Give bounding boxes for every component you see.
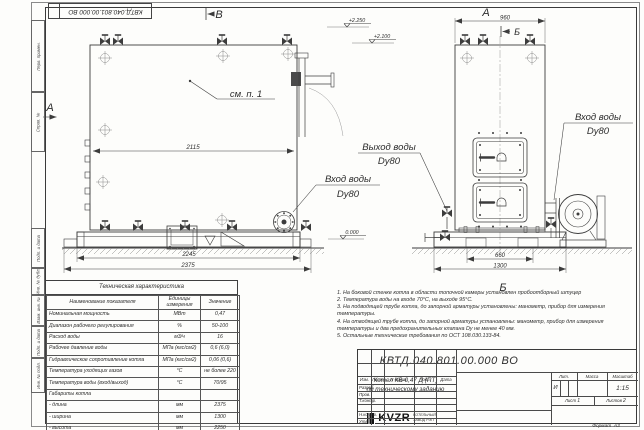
spec-table: Техническая характеристика Наименование … [45,280,238,424]
row-prov: Пров. [359,392,384,397]
spec-row: Рабочее давление водыМПа (кгс/см2)0,6 (6… [47,344,240,355]
spec-row: Диапазон рабочего регулирования%50-100 [47,321,240,332]
spec-row: - высотамм2250 [47,423,240,430]
margin-vzam-inv: Взам. инв. № [31,295,45,326]
col-podp: Подп. [414,377,436,382]
margin-podp-data-2: Подп. и дата [31,326,45,358]
col-izm: Изм. [358,377,371,382]
lit-value: И [551,385,560,391]
doc-number: КВТД.040.801.00.000 ВО [358,350,540,372]
note-line: 3. На подводящей трубе котла, до запорно… [337,304,621,318]
margin-inv-podl: Инв. № подл. [31,358,45,393]
margin-inv-dubl: Инв. № дубл. [31,268,45,295]
spec-row: Температура уходящих газов°Сне более 220 [47,366,240,377]
spec-row: - длинамм2375 [47,401,240,412]
note-line: 4. На отводящей трубе котла, до запорной… [337,319,621,333]
spec-table-grid: Наименование показателя Единицы измерени… [46,295,240,430]
margin-sprav-no: Справ. № [31,92,45,152]
drawing-sheet: В А см. п. 1 2115 2245 2375 Вход воды Dy… [0,0,644,430]
lit-label: Лит. [551,374,577,379]
margin-podp-data-1: Подп. и дата [31,228,45,268]
spec-row: Номинальная мощностьМВт0,47 [47,310,240,321]
col-ndoc: N докум. [384,377,414,382]
note-line: 1. На боковой стенке котла в области топ… [337,290,621,297]
row-tkontr: Т.контр. [359,398,384,403]
note-line: 5. Остальные технические требования по О… [337,333,621,340]
row-utv: Утв. [359,419,384,424]
spec-col-value: Значение [201,296,240,310]
notes: 1. На боковой стенке котла в области топ… [337,290,621,340]
spec-row: - ширинамм1300 [47,412,240,423]
row-nkontr: Н.контр. [359,412,384,417]
scale-label: Масштаб [607,374,638,379]
sheets-cell: Листов 2 [594,398,638,404]
sheet-cell: Лист 1 [551,398,594,404]
stamp-doc-number: КВТД.040.801.00.000 ВО [60,4,151,18]
spec-col-name: Наименование показателя [47,296,159,310]
col-data: Дата [436,377,456,382]
massa-label: Масса [577,374,607,379]
format-label: Формат А3 [575,424,637,429]
margin-perv-primen: Перв. примен. [31,20,45,92]
col-list: Лист [371,377,384,382]
spec-table-title: Техническая характеристика [46,281,237,295]
row-razrab: Разраб. [359,385,384,390]
spec-row: Температура воды (вход/выход)°С70/95 [47,378,240,389]
spec-row: Гидравлическое сопротивление котлаМПа (к… [47,355,240,366]
top-stamp: КВТД.040.801.00.000 ВО [48,3,152,19]
scale-value: 1:15 [607,385,638,392]
spec-col-units: Единицы измерения [159,296,201,310]
spec-row: Габариты котла [47,389,240,400]
spec-row: Расход водым3/ч16 [47,332,240,343]
spec-header-row: Наименование показателя Единицы измерени… [47,296,240,310]
stamp-divider-cell [49,4,60,18]
title-block: Изм. Лист N докум. Подп. Дата Разраб. Пр… [357,349,637,424]
